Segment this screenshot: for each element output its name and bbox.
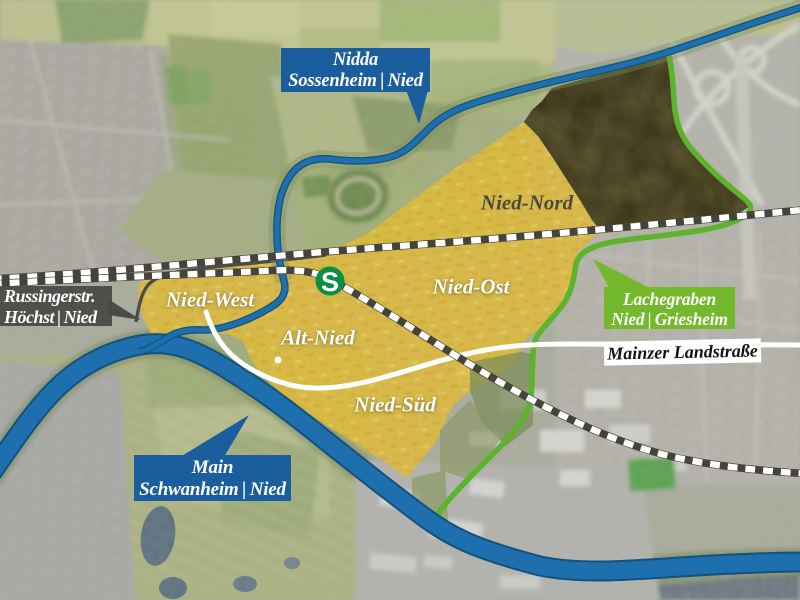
svg-text:S: S — [321, 267, 339, 297]
